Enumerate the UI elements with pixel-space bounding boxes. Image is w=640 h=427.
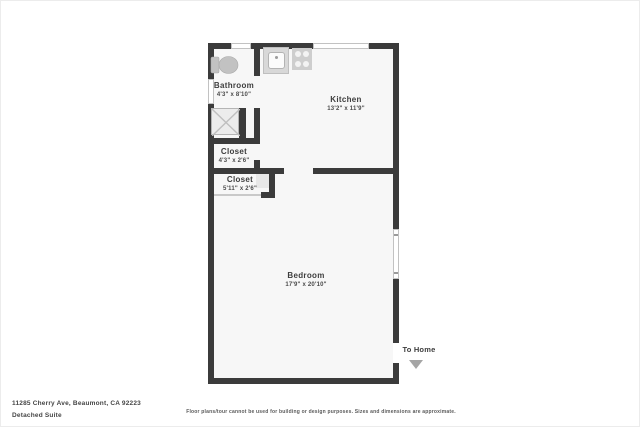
wall-segment [208,104,214,384]
wall-segment [393,43,399,229]
stove-burner [303,51,309,57]
window [231,43,251,49]
room-dims-closet-2: 5'11" x 2'6" [223,186,257,192]
room-dims-kitchen: 13'2" x 11'9" [327,106,365,112]
stove-burner [303,61,309,67]
stove-burner [295,51,301,57]
disclaimer-text: Floor plans/tour cannot be used for buil… [1,409,640,415]
to-home-arrow-icon [409,360,423,369]
floorplan-interior [214,49,393,378]
room-label-closet-1: Closet [221,148,247,156]
wall-segment [393,279,399,343]
closet-shading [256,174,269,188]
wall-segment [254,49,260,76]
floorplan-image: Bathroom 4'3" x 8'10" Kitchen 13'2" x 11… [0,0,640,427]
room-dims-bedroom: 17'9" x 20'10" [285,282,326,288]
sink-basin [268,52,285,69]
sink-icon [263,47,289,74]
room-label-bathroom: Bathroom [214,82,254,90]
toilet-icon [210,54,240,76]
room-label-kitchen: Kitchen [330,96,361,104]
wall-segment [261,192,275,198]
wall-segment [208,138,260,144]
wall-segment [239,108,246,144]
wall-segment [208,378,399,384]
to-home-label: To Home [401,345,437,354]
address-text: 11285 Cherry Ave, Beaumont, CA 92223 [12,400,141,407]
shower-icon [211,108,239,135]
room-label-bedroom: Bedroom [287,272,324,280]
sink-faucet [275,56,278,59]
room-dims-bathroom: 4'3" x 8'10" [217,92,251,98]
window [313,43,369,49]
room-label-closet-2: Closet [227,176,253,184]
closet-opening [214,194,261,196]
wall-segment [254,160,260,168]
stove-icon [292,48,312,70]
room-dims-closet-1: 4'3" x 2'6" [219,158,250,164]
window-tick [394,272,398,274]
wall-segment [313,168,399,174]
window-tick [394,234,398,236]
stove-burner [295,61,301,67]
